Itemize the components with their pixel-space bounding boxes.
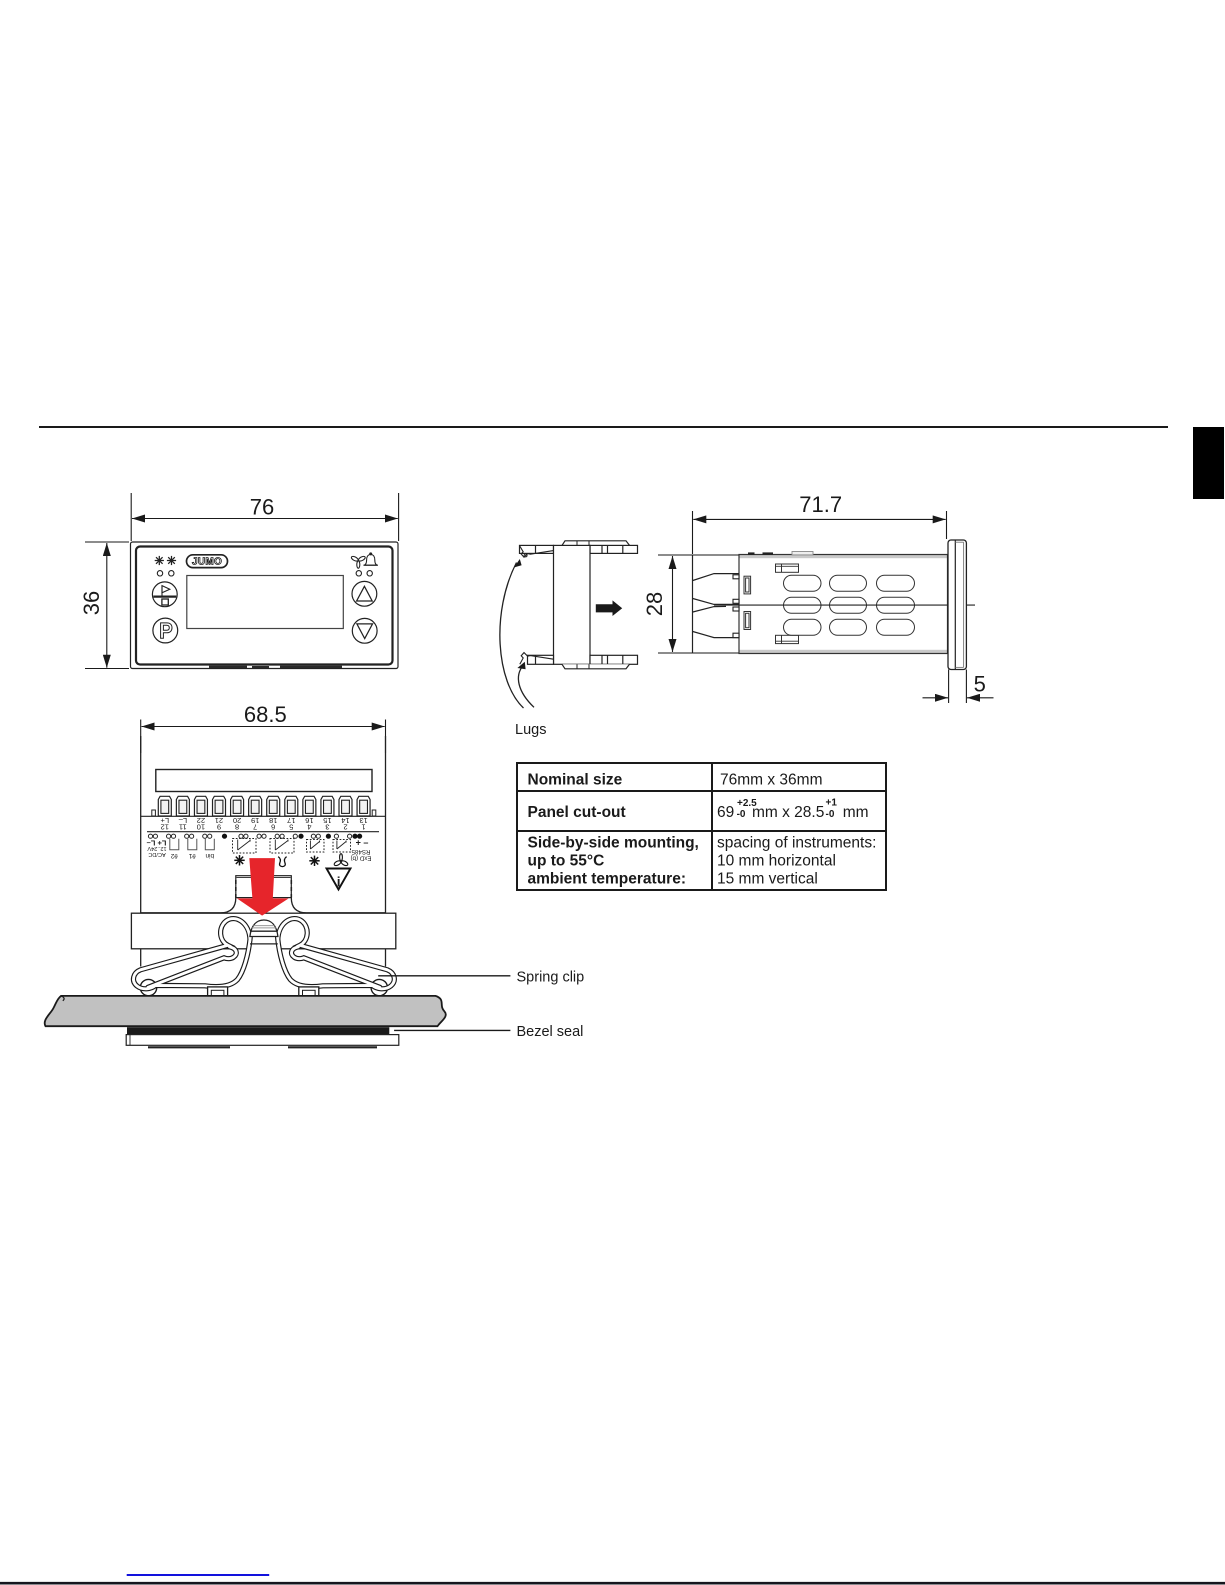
svg-text:i: i [337,874,341,889]
svg-text:76: 76 [250,495,274,520]
svg-text:+1: +1 [826,798,838,809]
svg-text:69: 69 [717,804,734,821]
svg-text:10 mm horizontal: 10 mm horizontal [717,852,836,869]
svg-text:Side-by-side mounting,: Side-by-side mounting, [528,834,699,851]
svg-text:ϑ2: ϑ2 [170,852,178,859]
svg-text:-0: -0 [737,809,746,820]
svg-text:RS485: RS485 [351,848,370,855]
svg-text:76mm x 36mm: 76mm x 36mm [720,771,823,788]
svg-text:5: 5 [289,823,293,832]
svg-text:11: 11 [179,823,187,832]
svg-text:ExD (b): ExD (b) [351,854,372,861]
svg-text:mm: mm [843,804,869,821]
svg-text:36: 36 [79,591,104,615]
svg-text:7: 7 [253,823,257,832]
svg-text:ambient temperature:: ambient temperature: [528,870,686,887]
svg-text:-0: -0 [826,809,835,820]
svg-text:12: 12 [161,823,169,832]
svg-text:9: 9 [217,823,221,832]
svg-text:6: 6 [271,823,275,832]
svg-text:ϑ1: ϑ1 [188,852,196,859]
svg-text:2: 2 [343,823,347,832]
svg-text:10: 10 [197,823,205,832]
svg-text:bin: bin [205,852,214,859]
svg-text:3: 3 [325,823,329,832]
svg-text:JUMO: JUMO [192,557,222,568]
svg-text:15 mm vertical: 15 mm vertical [717,870,818,887]
svg-text:1: 1 [362,823,366,832]
svg-text:Spring clip: Spring clip [517,969,585,985]
svg-text:spacing of instruments:: spacing of instruments: [717,834,876,851]
svg-text:12..24V: 12..24V [147,845,167,851]
svg-text:8: 8 [235,823,239,832]
svg-text:Panel cut-out: Panel cut-out [528,804,626,821]
svg-text:4: 4 [307,823,311,832]
svg-text:68.5: 68.5 [244,702,287,727]
svg-text:AC/DC: AC/DC [148,851,165,857]
svg-text:Bezel seal: Bezel seal [517,1024,584,1040]
svg-text:up to 55°C: up to 55°C [528,852,605,869]
svg-text:+ –: + – [356,838,369,848]
svg-text:Lugs: Lugs [515,722,546,738]
svg-text:5: 5 [974,672,986,697]
svg-text:28: 28 [642,592,667,616]
svg-text:71.7: 71.7 [799,492,842,517]
svg-text:Nominal size: Nominal size [528,771,623,788]
svg-text:mm x 28.5: mm x 28.5 [752,804,824,821]
